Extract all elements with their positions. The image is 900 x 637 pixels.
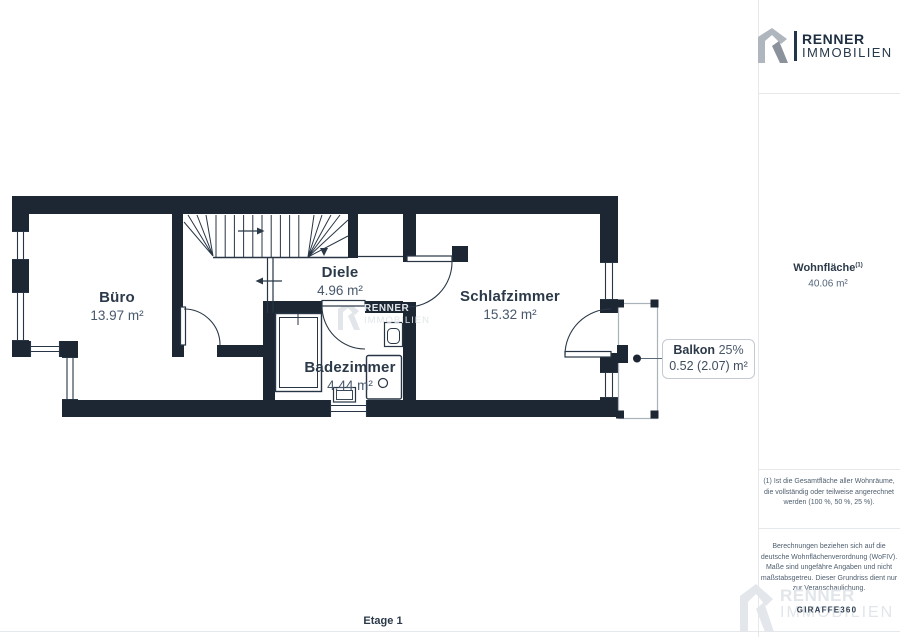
room-area: 4.96 m² — [317, 283, 363, 298]
watermark-logo-icon — [738, 582, 778, 634]
balcony-area: 0.52 (2.07) m² — [669, 359, 748, 375]
balcony-name: Balkon 25% — [673, 343, 743, 359]
room-name: Büro — [90, 289, 143, 306]
living-area-label: Wohnfläche(1) — [793, 262, 862, 274]
room-name: Diele — [317, 264, 363, 281]
living-area-value: 40.06 m² — [808, 279, 847, 290]
logo-divider-bar — [794, 31, 797, 61]
room-name: Badezimmer — [304, 359, 395, 376]
room-label-schlafzimmer: Schlafzimmer 15.32 m² — [460, 288, 560, 322]
room-label-buero: Büro 13.97 m² — [90, 289, 143, 323]
living-area-label-text: Wohnfläche — [793, 262, 855, 274]
page-canvas: Büro 13.97 m² Diele 4.96 m² Schlafzimmer… — [0, 0, 900, 637]
room-name: Schlafzimmer — [460, 288, 560, 305]
toilet — [385, 323, 403, 347]
room-area: 13.97 m² — [90, 308, 143, 323]
staircase — [184, 215, 403, 258]
room-label-badezimmer: Badezimmer 4.44 m² — [304, 359, 395, 393]
room-area: 4.44 m² — [304, 378, 395, 393]
provider-label: GIRAFFE360 — [797, 606, 857, 615]
room-label-diele: Diele 4.96 m² — [317, 264, 363, 298]
footnote-text: (1) Ist die Gesamtfläche aller Wohnräume… — [759, 477, 899, 509]
plan-watermark-line1: RENNER — [364, 303, 409, 314]
balcony-dot — [633, 355, 641, 363]
logo-company-suffix: IMMOBILIEN — [802, 45, 893, 60]
divider — [758, 528, 900, 529]
divider — [758, 469, 900, 470]
balcony-name-text: Balkon — [673, 343, 715, 357]
room-area: 15.32 m² — [460, 307, 560, 322]
plan-watermark-line2: IMMOBILIEN — [364, 315, 430, 326]
living-area-superscript: (1) — [855, 262, 862, 268]
balcony — [616, 300, 662, 419]
floor-label: Etage 1 — [363, 615, 402, 627]
divider — [758, 93, 900, 94]
balcony-label-box: Balkon 25% 0.52 (2.07) m² — [662, 339, 755, 379]
balcony-percent: 25% — [719, 343, 744, 357]
watermark-text-line1: RENNER — [780, 586, 855, 606]
renner-logo-icon — [756, 26, 792, 66]
